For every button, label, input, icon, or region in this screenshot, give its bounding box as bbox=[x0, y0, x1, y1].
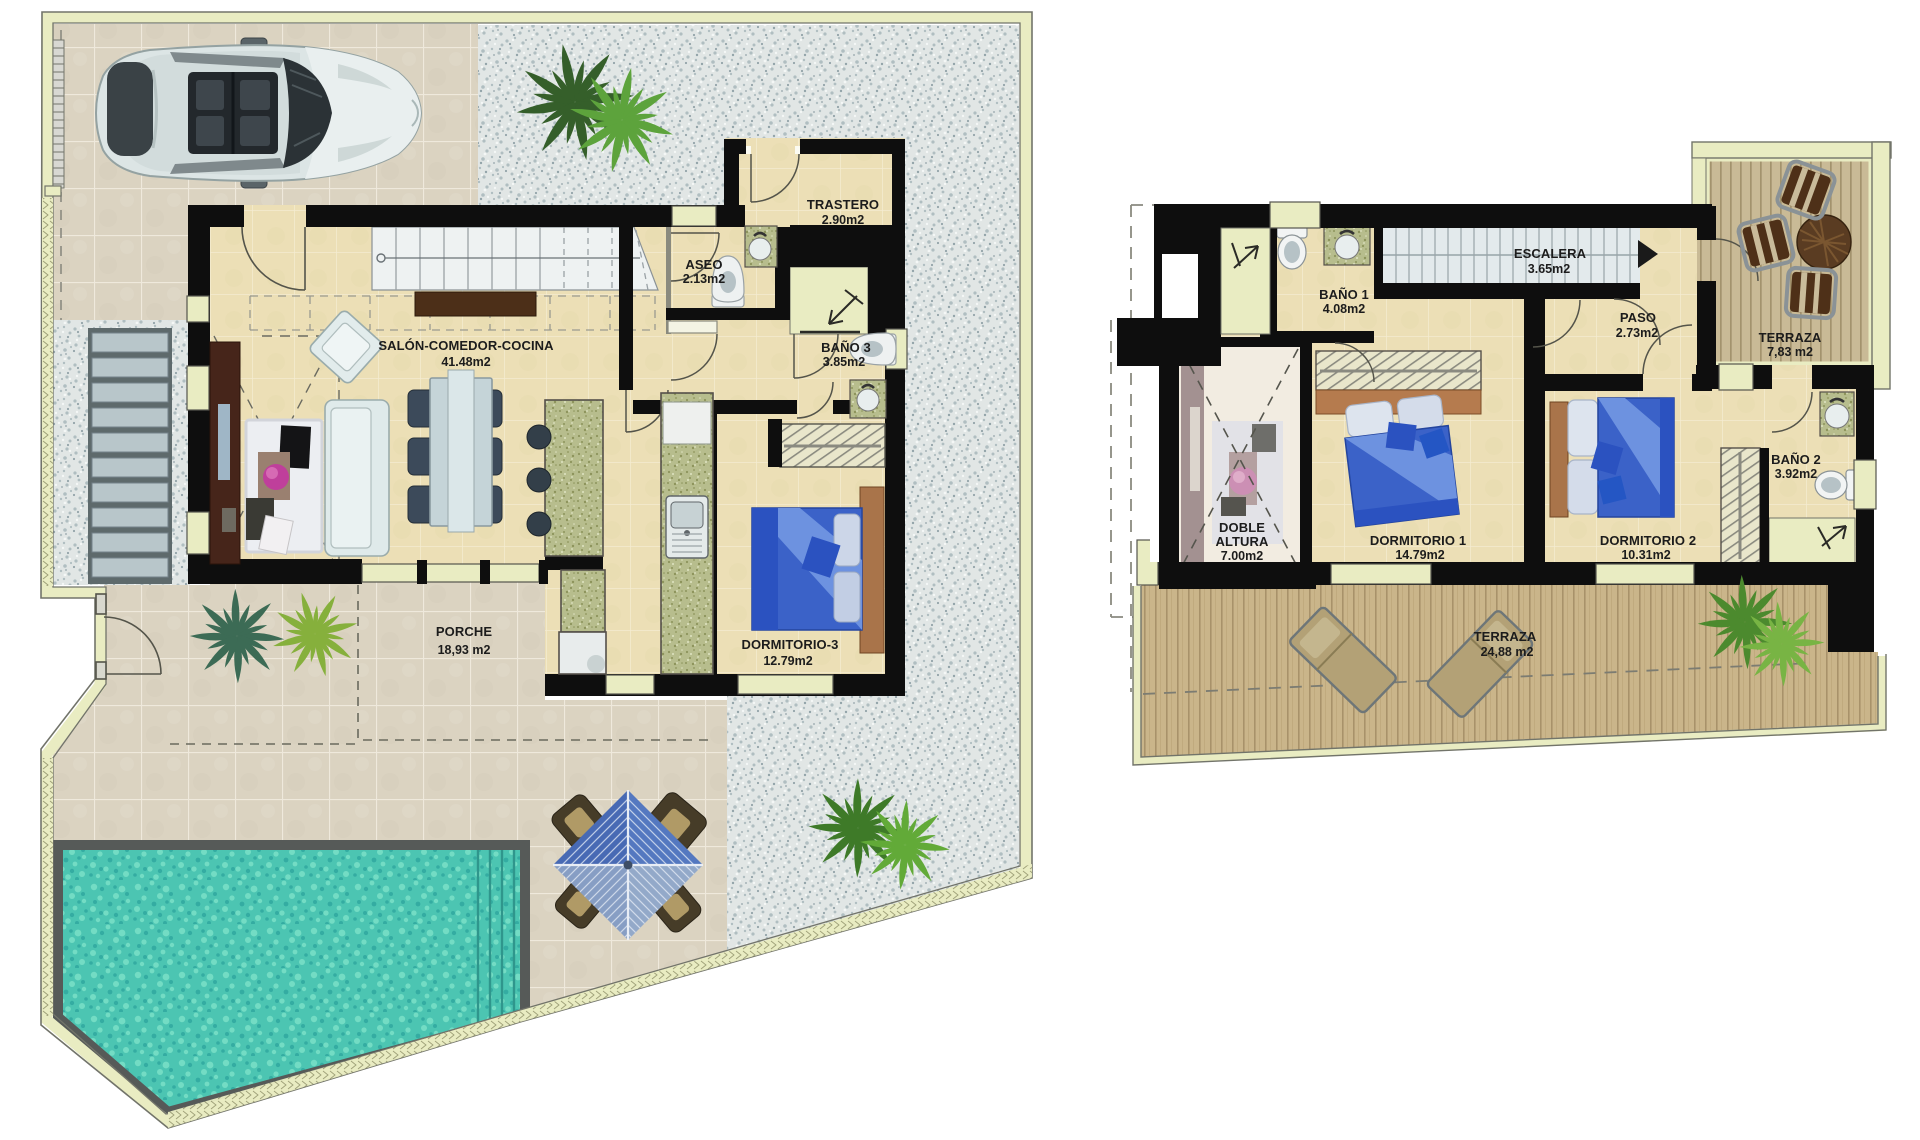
svg-text:ESCALERA: ESCALERA bbox=[1514, 246, 1587, 261]
svg-text:ASEO: ASEO bbox=[685, 257, 722, 272]
svg-text:10.31m2: 10.31m2 bbox=[1621, 548, 1670, 562]
svg-text:PASO: PASO bbox=[1620, 310, 1656, 325]
svg-text:14.79m2: 14.79m2 bbox=[1395, 548, 1444, 562]
svg-text:3.85m2: 3.85m2 bbox=[823, 355, 865, 369]
svg-text:3.92m2: 3.92m2 bbox=[1775, 467, 1817, 481]
svg-text:TERRAZA: TERRAZA bbox=[1474, 629, 1537, 644]
svg-text:41.48m2: 41.48m2 bbox=[441, 355, 490, 369]
svg-text:2.90m2: 2.90m2 bbox=[822, 213, 864, 227]
svg-text:BAÑO 3: BAÑO 3 bbox=[821, 340, 871, 355]
svg-text:2.13m2: 2.13m2 bbox=[683, 272, 725, 286]
svg-text:SALÓN-COMEDOR-COCINA: SALÓN-COMEDOR-COCINA bbox=[378, 338, 554, 353]
svg-text:DORMITORIO-3: DORMITORIO-3 bbox=[741, 637, 838, 652]
svg-text:7,83 m2: 7,83 m2 bbox=[1767, 345, 1813, 359]
svg-text:18,93 m2: 18,93 m2 bbox=[438, 643, 491, 657]
svg-text:DORMITORIO 2: DORMITORIO 2 bbox=[1600, 533, 1696, 548]
svg-text:24,88 m2: 24,88 m2 bbox=[1481, 645, 1534, 659]
svg-text:TERRAZA: TERRAZA bbox=[1759, 330, 1822, 345]
svg-text:DORMITORIO 1: DORMITORIO 1 bbox=[1370, 533, 1466, 548]
svg-text:TRASTERO: TRASTERO bbox=[807, 197, 879, 212]
svg-text:2.73m2: 2.73m2 bbox=[1616, 326, 1658, 340]
svg-text:DOBLE: DOBLE bbox=[1219, 520, 1265, 535]
svg-text:PORCHE: PORCHE bbox=[436, 624, 492, 639]
svg-text:12.79m2: 12.79m2 bbox=[763, 654, 812, 668]
svg-text:BAÑO 1: BAÑO 1 bbox=[1319, 287, 1369, 302]
svg-text:BAÑO 2: BAÑO 2 bbox=[1771, 452, 1821, 467]
svg-text:7.00m2: 7.00m2 bbox=[1221, 549, 1263, 563]
svg-text:3.65m2: 3.65m2 bbox=[1528, 262, 1570, 276]
svg-text:4.08m2: 4.08m2 bbox=[1323, 302, 1365, 316]
svg-text:ALTURA: ALTURA bbox=[1215, 534, 1269, 549]
